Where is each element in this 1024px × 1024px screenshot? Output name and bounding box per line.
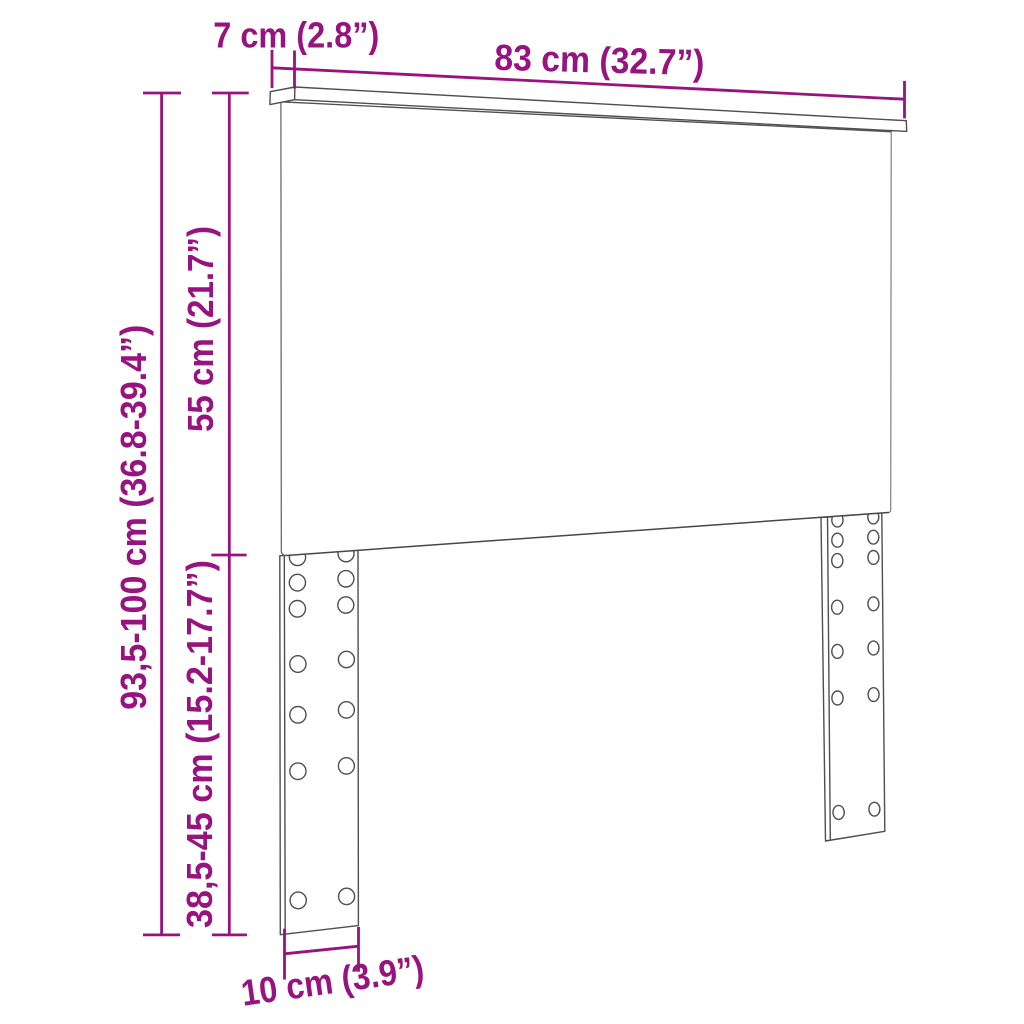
svg-text:38,5-45 cm (15.2-17.7”): 38,5-45 cm (15.2-17.7”) bbox=[179, 560, 220, 928]
svg-text:55 cm (21.7”): 55 cm (21.7”) bbox=[180, 226, 221, 432]
svg-text:7 cm (2.8”): 7 cm (2.8”) bbox=[213, 14, 379, 55]
svg-text:93,5-100 cm (36.8-39.4”): 93,5-100 cm (36.8-39.4”) bbox=[113, 325, 154, 710]
svg-text:83 cm (32.7”): 83 cm (32.7”) bbox=[494, 37, 705, 83]
